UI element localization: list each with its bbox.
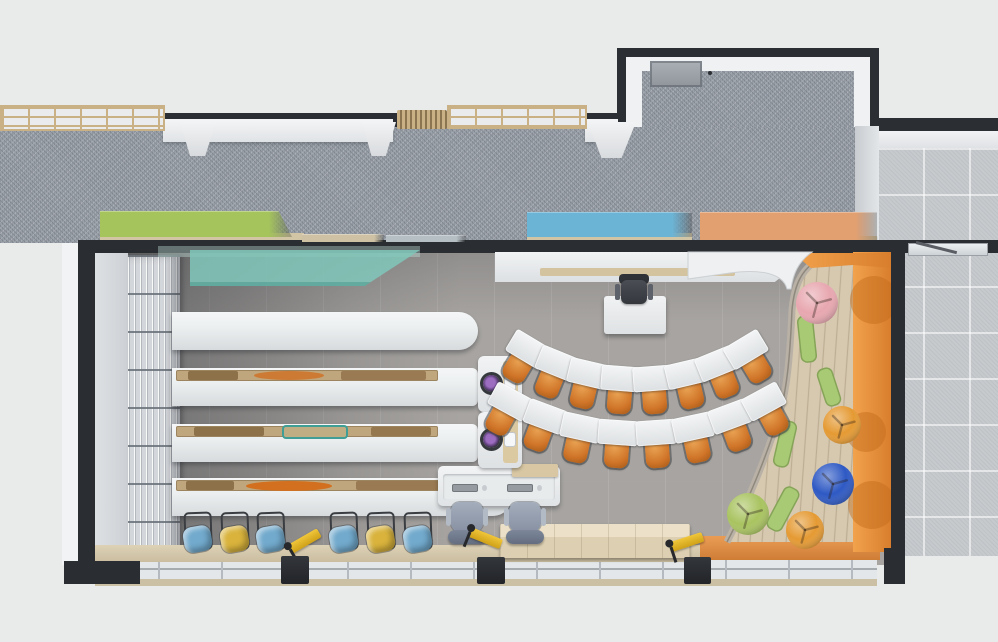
stool[interactable] — [400, 516, 436, 557]
mouse[interactable] — [482, 485, 487, 491]
stool[interactable] — [326, 516, 362, 557]
stool[interactable] — [180, 516, 216, 557]
stool-seat — [327, 524, 359, 554]
room-corner-bottom-right — [884, 548, 905, 584]
office-chair[interactable] — [506, 500, 544, 546]
pouf-pink[interactable] — [796, 282, 838, 324]
mouse[interactable] — [537, 485, 542, 491]
pouf-blue[interactable] — [812, 463, 854, 505]
chair-arm — [541, 508, 546, 526]
stool-seat — [181, 524, 213, 554]
keyboard[interactable] — [507, 484, 533, 492]
keyboard[interactable] — [452, 484, 478, 492]
display-table-4-display — [176, 480, 472, 491]
stool-seat — [364, 524, 396, 554]
display-table-2 — [172, 368, 478, 406]
exhibit-item — [371, 427, 431, 436]
pouf-orange-lower[interactable] — [786, 511, 824, 549]
pouf-green[interactable] — [727, 493, 769, 535]
chair-arm — [483, 508, 488, 526]
window-pillar — [684, 557, 711, 584]
display-table-2-display — [176, 370, 438, 381]
chair-back — [506, 530, 544, 544]
student-desk-unit[interactable] — [595, 419, 639, 480]
stool-seat — [218, 524, 250, 554]
stool-seat — [401, 524, 433, 554]
exhibit-item — [284, 427, 346, 437]
pouf-orange-upper[interactable] — [823, 406, 861, 444]
chair-arm — [446, 508, 451, 526]
floorplan-stage — [0, 0, 998, 642]
stool-seat — [254, 524, 286, 554]
desk-top — [597, 419, 639, 447]
chair-arm — [648, 284, 653, 300]
exhibit-item — [246, 481, 332, 491]
display-table-1 — [172, 312, 478, 350]
exhibit-item — [194, 427, 264, 436]
curved-counter — [688, 252, 812, 289]
stool[interactable] — [217, 516, 253, 557]
exhibit-item — [188, 371, 238, 380]
window-pillar — [281, 556, 309, 584]
exhibit-item — [186, 481, 234, 490]
chair-arm — [504, 508, 509, 526]
stool[interactable] — [363, 516, 399, 557]
exhibit-item — [341, 371, 426, 380]
chair-arm — [615, 284, 620, 300]
display-table-3 — [172, 424, 478, 462]
chair-seat — [509, 502, 541, 532]
room-corner-bottom-left — [64, 561, 140, 584]
exhibit-item — [254, 371, 324, 380]
teacher-chair[interactable] — [615, 274, 653, 306]
stool[interactable] — [253, 516, 289, 557]
display-table-3-display — [176, 426, 438, 437]
room-right-wall — [891, 240, 905, 584]
desk-top — [635, 419, 677, 447]
window-pillar — [477, 557, 505, 584]
chair-seat — [621, 280, 647, 304]
wall-circle-decor — [848, 481, 896, 529]
